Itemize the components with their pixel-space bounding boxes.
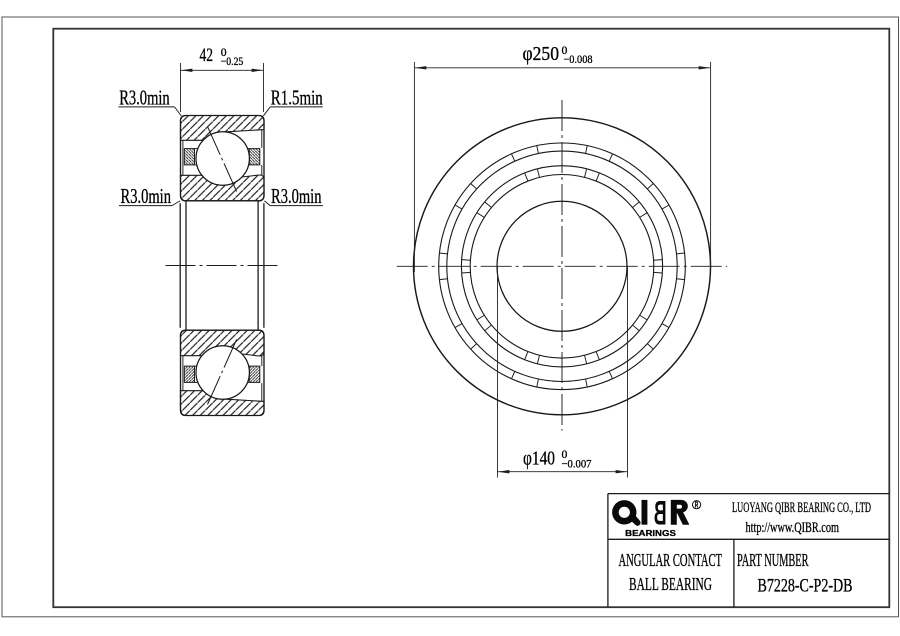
svg-text:http://www.QIBR.com: http://www.QIBR.com xyxy=(746,520,840,536)
svg-text:PART NUMBER: PART NUMBER xyxy=(737,550,809,570)
svg-text:−0.008: −0.008 xyxy=(564,53,593,66)
svg-text:R: R xyxy=(695,501,699,510)
svg-text:BEARINGS: BEARINGS xyxy=(625,528,676,538)
svg-text:42: 42 xyxy=(200,45,214,66)
svg-text:ANGULAR CONTACT: ANGULAR CONTACT xyxy=(619,550,723,570)
svg-text:R3.0min: R3.0min xyxy=(121,184,172,208)
svg-text:R3.0min: R3.0min xyxy=(119,86,170,110)
svg-text:B7228-C-P2-DB: B7228-C-P2-DB xyxy=(758,575,853,596)
svg-text:R1.5min: R1.5min xyxy=(271,86,323,110)
svg-text:φ250: φ250 xyxy=(523,43,560,65)
svg-text:R3.0min: R3.0min xyxy=(271,184,322,208)
svg-text:LUOYANG QIBR BEARING CO., LTD: LUOYANG QIBR BEARING CO., LTD xyxy=(732,500,871,516)
svg-text:BALL BEARING: BALL BEARING xyxy=(629,574,712,594)
svg-text:−0.007: −0.007 xyxy=(562,457,592,470)
svg-text:φ140: φ140 xyxy=(523,448,555,470)
svg-text:−0.25: −0.25 xyxy=(221,55,244,68)
